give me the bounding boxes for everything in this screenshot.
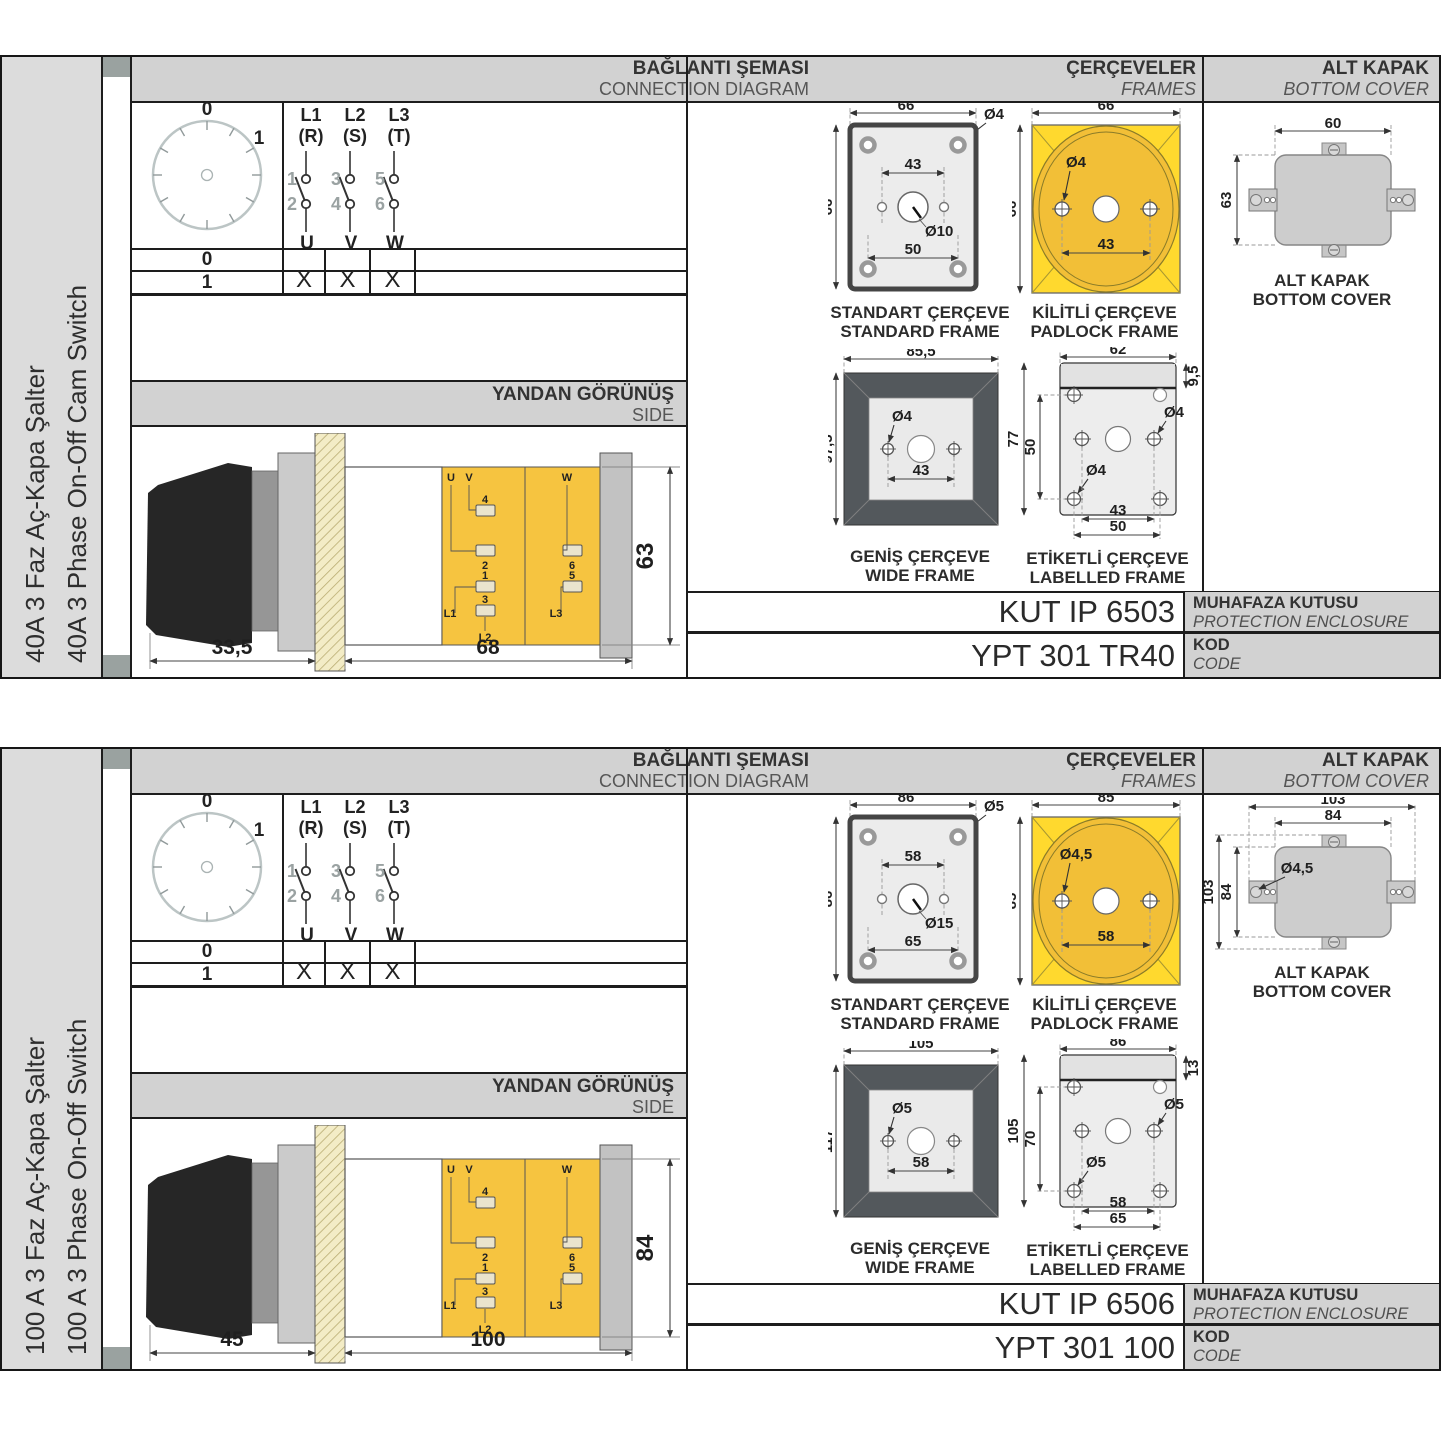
terminal-number-in: 5 [375,861,385,881]
phase-label: (S) [343,126,367,146]
dim-body-length: 100 [470,1328,505,1351]
wide-frame-drawing: 105 117 Ø5 58 [828,1041,1013,1237]
product-code: YPT 301 100 [686,1326,1183,1369]
dim-handle-depth: 33,5 [212,636,253,659]
side-view-header: YANDAN GÖRÜNÜŞ SIDE [132,380,686,427]
dim-center-hole: Ø10 [925,223,953,240]
dim-width: 62 [1110,347,1127,358]
label-turkish: MUHAFAZA KUTUSU [1193,1286,1439,1305]
dim-height: 97,5 [828,434,836,463]
phase-label: (T) [388,818,411,838]
enclosure-code: KUT IP 6506 [686,1284,1183,1323]
section-subtitle: FRAMES [819,772,1196,791]
labelled-frame-drawing: 62 9,5 77 50 Ø4 Ø4 43 [1008,347,1208,547]
dim-hole-1: Ø4 [1164,404,1185,421]
contact-state: X [371,960,414,984]
caption-turkish: ALT KAPAK [1222,963,1422,982]
index-marker-top [103,749,130,769]
caption-english: PADLOCK FRAME [1002,1014,1207,1033]
dim-label-band: 13 [1185,1060,1202,1077]
dim-spacing-1: 43 [1110,502,1127,519]
terminal-number-out: 6 [375,194,385,214]
side-label-column: 100 A 3 Faz Aç-Kapa Şalter 100 A 3 Phase… [2,749,103,1369]
dim-lower-spacing: 65 [905,933,922,950]
dim-outer-height: 103 [1200,879,1217,904]
handle [146,463,252,647]
index-marker-bottom [103,655,130,677]
dim-height: 63 [632,543,659,570]
terminal-5: 5 [569,570,575,582]
table-line [132,985,686,988]
pole-1: L1 (R) 1 2 U [287,105,324,250]
table-position-1: 1 [132,272,282,293]
dial-position-off: 0 [202,101,213,120]
contacts-drawing: L1 (R) 1 2 U L2 (S) 3 4 V L3 (T) [283,793,683,942]
header-frames: ÇERÇEVELER FRAMES [819,749,1206,793]
dim-hole-spacing: 43 [913,462,930,479]
padlock-frame-drawing: 66 66 Ø4 43 [1012,103,1197,303]
dim-width: 66 [898,103,915,114]
padlock-frame-drawing: 85 85 Ø4,5 58 [1012,795,1197,995]
dim-label-band: 9,5 [1185,366,1202,387]
header-frames: ÇERÇEVELER FRAMES [819,57,1206,101]
dim-center-hole: Ø15 [925,915,953,932]
standard-frame-drawing: 66 Ø4 66 43 Ø10 50 [828,103,1013,303]
phase-label: (S) [343,818,367,838]
dim-corner-hole: Ø4 [984,106,1005,123]
index-marker-top [103,57,130,77]
terminal-l1: L1 [444,1300,457,1312]
table-position-1: 1 [132,964,282,985]
side-view-subtitle: SIDE [132,406,674,425]
table-line [414,248,416,295]
dim-height: 66 [1012,201,1020,218]
end-cap [600,453,632,658]
side-view-header: YANDAN GÖRÜNÜŞ SIDE [132,1072,686,1119]
product-name-english: 40A 3 Phase On-Off Cam Switch [62,285,93,663]
dim-spacing-2: 65 [1110,1210,1127,1227]
label-turkish: KOD [1193,1328,1439,1347]
dim-corner-hole: Ø5 [984,798,1004,815]
product-name-turkish: 40A 3 Faz Aç-Kapa Şalter [20,365,51,663]
dim-handle-depth: 45 [220,1328,244,1351]
standard-frame-caption: STANDART ÇERÇEVE STANDARD FRAME [820,995,1020,1033]
section-title: ALT KAPAK [1206,57,1429,80]
side-view-drawing: U V W 4 2 6 1 5 3 L1 L2 L3 63 33,5 68 [140,433,700,677]
terminal-number-in: 1 [287,169,297,189]
switch-dial-drawing: 0 1 [132,793,282,941]
terminal-number-out: 4 [331,194,341,214]
dim-hole-spacing: 43 [1098,236,1115,253]
contact-state: X [326,268,369,292]
dim-hole-spacing: 58 [1098,928,1115,945]
label-english: PROTECTION ENCLOSURE [1193,613,1439,631]
caption-turkish: STANDART ÇERÇEVE [820,995,1020,1014]
bottom-cover-caption: ALT KAPAK BOTTOM COVER [1222,271,1422,309]
dim-hole: Ø4 [1066,154,1087,171]
section-subtitle: BOTTOM COVER [1206,772,1429,791]
caption-english: BOTTOM COVER [1222,982,1422,1001]
caption-english: BOTTOM COVER [1222,290,1422,309]
dim-width: 66 [1098,103,1115,114]
index-marker-bottom [103,1347,130,1369]
table-position-0: 0 [132,941,282,962]
caption-turkish: GENİŞ ÇERÇEVE [820,547,1020,566]
bottom-cover-caption: ALT KAPAK BOTTOM COVER [1222,963,1422,1001]
product-code: YPT 301 TR40 [686,634,1183,677]
line-label: L2 [344,797,365,817]
caption-turkish: KİLİTLİ ÇERÇEVE [1002,303,1207,322]
dim-width: 84 [1325,807,1342,824]
caption-turkish: ALT KAPAK [1222,271,1422,290]
line-label: L3 [388,105,409,125]
contact-state: X [371,268,414,292]
body-front-section [345,467,442,645]
caption-english: LABELLED FRAME [1000,1260,1215,1279]
caption-english: LABELLED FRAME [1000,568,1215,587]
index-strip [103,749,132,1369]
caption-english: STANDARD FRAME [820,322,1020,341]
terminal-l3: L3 [550,608,563,620]
terminal-number-out: 2 [287,194,297,214]
label-english: CODE [1193,655,1439,673]
phase-label: (R) [299,126,324,146]
dim-height: 86 [828,891,836,908]
dial-position-on: 1 [254,128,265,149]
caption-turkish: STANDART ÇERÇEVE [820,303,1020,322]
terminal-number-out: 4 [331,886,341,906]
contact-state: X [284,268,324,292]
terminal-number-in: 1 [287,861,297,881]
padlock-frame-caption: KİLİTLİ ÇERÇEVE PADLOCK FRAME [1002,303,1207,341]
header-bar: BAĞLANTI ŞEMASI CONNECTION DIAGRAM ÇERÇE… [132,749,1439,795]
contacts-drawing: L1 (R) 1 2 U L2 (S) 3 4 V L3 (T) [283,101,683,250]
side-view-subtitle: SIDE [132,1098,674,1117]
dim-height: 84 [1218,883,1235,900]
terminal-l1: L1 [444,608,457,620]
switch-dial-drawing: 0 1 [132,101,282,249]
caption-english: WIDE FRAME [820,566,1020,585]
terminal-3: 3 [482,1286,488,1298]
index-strip [103,57,132,677]
dim-width: 86 [898,795,915,806]
pole-3: L3 (T) 5 6 W [375,797,411,942]
header-bottom-cover: ALT KAPAK BOTTOM COVER [1206,57,1439,101]
contact-state: X [284,960,324,984]
standard-frame-caption: STANDART ÇERÇEVE STANDARD FRAME [820,303,1020,341]
section-subtitle: FRAMES [819,80,1196,99]
padlock-frame-caption: KİLİTLİ ÇERÇEVE PADLOCK FRAME [1002,995,1207,1033]
product-panel: 100 A 3 Faz Aç-Kapa Şalter 100 A 3 Phase… [0,747,1441,1371]
dim-height: 77 [1008,431,1022,448]
bottom-cover-drawing: 103 84 103 84 Ø4, [1197,797,1445,959]
section-title: ALT KAPAK [1206,749,1429,772]
product-name-turkish: 100 A 3 Faz Aç-Kapa Şalter [20,1037,51,1355]
dim-width: 85 [1098,795,1115,806]
dim-inner-height: 70 [1022,1131,1039,1148]
enclosure-label: MUHAFAZA KUTUSU PROTECTION ENCLOSURE [1183,1284,1439,1323]
section-title: ÇERÇEVELER [819,57,1196,80]
table-position-0: 0 [132,249,282,270]
table-line [414,940,416,987]
dim-hole: Ø4 [892,408,913,425]
terminal-number-in: 5 [375,169,385,189]
dim-height: 85 [1012,893,1020,910]
terminal-w: W [562,1164,573,1176]
mounting-panel-hatch [315,433,345,671]
label-turkish: KOD [1193,636,1439,655]
cover-body [1275,155,1391,245]
enclosure-code: KUT IP 6503 [686,592,1183,631]
line-label: L2 [344,105,365,125]
dim-lower-spacing: 50 [905,241,922,258]
dial-position-off: 0 [202,793,213,812]
section-title: BAĞLANTI ŞEMASI [132,749,809,772]
dim-height: 84 [632,1234,659,1261]
dim-hole-1: Ø5 [1164,1096,1184,1113]
handle [146,1155,252,1339]
line-label: L3 [388,797,409,817]
header-bar: BAĞLANTI ŞEMASI CONNECTION DIAGRAM ÇERÇE… [132,57,1439,103]
dim-hole-spacing: 58 [913,1154,930,1171]
product-panel: 40A 3 Faz Aç-Kapa Şalter 40A 3 Phase On-… [0,55,1441,679]
mounting-panel-hatch [315,1125,345,1363]
labelled-frame-caption: ETİKETLİ ÇERÇEVE LABELLED FRAME [1000,549,1215,587]
contact-state: X [326,960,369,984]
handle-base [252,471,278,631]
dim-spacing-1: 58 [1110,1194,1127,1211]
section-subtitle: CONNECTION DIAGRAM [132,772,809,791]
section-subtitle: CONNECTION DIAGRAM [132,80,809,99]
wide-frame-drawing: 85,5 97,5 Ø4 43 [828,349,1013,545]
label-english: CODE [1193,1347,1439,1365]
body-front-section [345,1159,442,1337]
side-label-column: 40A 3 Faz Aç-Kapa Şalter 40A 3 Phase On-… [2,57,103,677]
dim-hole-2: Ø4 [1086,462,1107,479]
side-view-title: YANDAN GÖRÜNÜŞ [132,384,674,406]
terminal-v: V [465,1164,473,1176]
header-connection-diagram: BAĞLANTI ŞEMASI CONNECTION DIAGRAM [132,749,819,793]
terminal-number-out: 6 [375,886,385,906]
pole-3: L3 (T) 5 6 W [375,105,411,250]
table-line [132,293,686,296]
terminal-1: 1 [482,1262,488,1274]
dim-width: 60 [1325,115,1342,132]
label-turkish: MUHAFAZA KUTUSU [1193,594,1439,613]
end-cap [600,1145,632,1350]
section-title: BAĞLANTI ŞEMASI [132,57,809,80]
front-plate [278,1145,315,1343]
labelled-frame-drawing: 86 13 105 70 Ø5 Ø5 58 [1008,1039,1208,1239]
header-bottom-cover: ALT KAPAK BOTTOM COVER [1206,749,1439,793]
enclosure-label: MUHAFAZA KUTUSU PROTECTION ENCLOSURE [1183,592,1439,631]
dim-height: 66 [828,199,836,216]
pole-1: L1 (R) 1 2 U [287,797,324,942]
caption-turkish: GENİŞ ÇERÇEVE [820,1239,1020,1258]
code-label: KOD CODE [1183,1326,1439,1369]
terminal-3: 3 [482,594,488,606]
bottom-cover-drawing: 60 63 [1197,105,1445,267]
caption-english: PADLOCK FRAME [1002,322,1207,341]
pole-2: L2 (S) 3 4 V [331,105,367,250]
product-name-english: 100 A 3 Phase On-Off Switch [62,1019,93,1355]
terminal-number-in: 3 [331,861,341,881]
wide-frame-caption: GENİŞ ÇERÇEVE WIDE FRAME [820,547,1020,585]
side-view-drawing: U V W 4 2 6 1 5 3 L1 L2 L3 84 45 100 [140,1125,700,1369]
terminal-w: W [562,472,573,484]
labelled-frame-caption: ETİKETLİ ÇERÇEVE LABELLED FRAME [1000,1241,1215,1279]
dim-hole: Ø4,5 [1281,860,1314,877]
header-connection-diagram: BAĞLANTI ŞEMASI CONNECTION DIAGRAM [132,57,819,101]
dim-width: 85,5 [906,349,935,360]
dim-hole-spacing: 58 [905,848,922,865]
side-view-title: YANDAN GÖRÜNÜŞ [132,1076,674,1098]
handle-base [252,1163,278,1323]
dim-hole-2: Ø5 [1086,1154,1106,1171]
caption-turkish: ETİKETLİ ÇERÇEVE [1000,1241,1215,1260]
dial-position-on: 1 [254,820,265,841]
dim-hole-spacing: 43 [905,156,922,173]
caption-turkish: KİLİTLİ ÇERÇEVE [1002,995,1207,1014]
wide-frame-caption: GENİŞ ÇERÇEVE WIDE FRAME [820,1239,1020,1277]
terminal-4: 4 [482,494,489,506]
caption-english: STANDARD FRAME [820,1014,1020,1033]
caption-turkish: ETİKETLİ ÇERÇEVE [1000,549,1215,568]
label-english: PROTECTION ENCLOSURE [1193,1305,1439,1323]
pole-2: L2 (S) 3 4 V [331,797,367,942]
terminal-4: 4 [482,1186,489,1198]
dim-hole: Ø4,5 [1060,846,1093,863]
dim-height: 117 [828,1129,836,1153]
dim-inner-height: 50 [1022,439,1039,456]
dim-height: 63 [1218,192,1235,209]
dim-hole: Ø5 [892,1100,912,1117]
terminal-number-out: 2 [287,886,297,906]
caption-english: WIDE FRAME [820,1258,1020,1277]
dim-body-length: 68 [476,636,500,659]
line-label: L1 [300,797,321,817]
terminal-5: 5 [569,1262,575,1274]
terminal-1: 1 [482,570,488,582]
section-subtitle: BOTTOM COVER [1206,80,1429,99]
terminal-number-in: 3 [331,169,341,189]
terminal-v: V [465,472,473,484]
phase-label: (R) [299,818,324,838]
terminal-u: U [447,472,455,484]
dim-width: 86 [1110,1039,1127,1050]
dim-spacing-2: 50 [1110,518,1127,535]
terminal-l3: L3 [550,1300,563,1312]
section-title: ÇERÇEVELER [819,749,1196,772]
dim-height: 105 [1008,1118,1022,1143]
standard-frame-drawing: 86 Ø5 86 58 Ø15 65 [828,795,1013,995]
terminal-u: U [447,1164,455,1176]
line-label: L1 [300,105,321,125]
dim-width: 105 [908,1041,933,1052]
phase-label: (T) [388,126,411,146]
code-label: KOD CODE [1183,634,1439,677]
front-plate [278,453,315,651]
